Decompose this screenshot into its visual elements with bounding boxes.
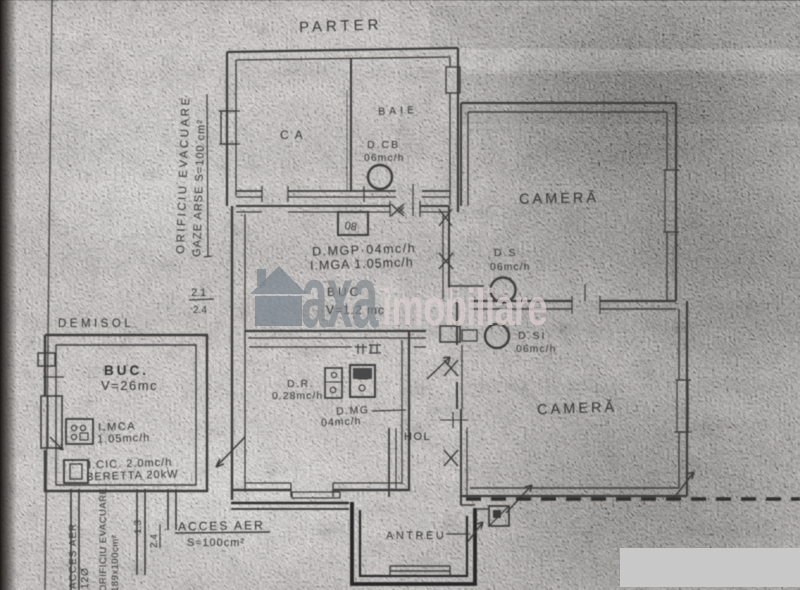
svg-text:D.R.: D.R.	[287, 378, 314, 390]
svg-text:1.05mc/h: 1.05mc/h	[97, 432, 151, 446]
svg-text:BUC.: BUC.	[104, 363, 149, 378]
svg-text:HOL: HOL	[404, 431, 431, 443]
svg-text:CAMERĂ: CAMERĂ	[537, 399, 618, 419]
svg-text:2.1: 2.1	[191, 287, 206, 299]
svg-text:1.3: 1.3	[133, 520, 144, 534]
svg-text:06mc/h: 06mc/h	[364, 152, 404, 164]
svg-text:DEMISOL: DEMISOL	[58, 318, 134, 330]
svg-text:ACCES AER: ACCES AER	[178, 518, 265, 534]
svg-text:CA: CA	[280, 128, 309, 142]
svg-text:ORIFICIU EVACUARE: ORIFICIU EVACUARE	[98, 488, 109, 590]
svg-text:axa: axa	[301, 249, 379, 347]
svg-text:06mc/h: 06mc/h	[516, 343, 556, 355]
svg-text:189x100cm²: 189x100cm²	[110, 535, 121, 590]
svg-text:D.S: D.S	[494, 247, 518, 259]
svg-text:ANTREU: ANTREU	[386, 530, 446, 542]
svg-text:D.CB: D.CB	[367, 139, 400, 151]
svg-text:0.28mc/h: 0.28mc/h	[272, 390, 323, 402]
svg-text:04mc/h: 04mc/h	[321, 415, 362, 429]
svg-text:S≈100cm²: S≈100cm²	[187, 537, 245, 549]
svg-text:08: 08	[344, 220, 358, 234]
svg-text:imobiliare: imobiliare	[382, 277, 547, 336]
svg-text:12Ø: 12Ø	[80, 567, 91, 589]
svg-text:PARTER: PARTER	[299, 16, 383, 36]
svg-text:06mc/h: 06mc/h	[490, 261, 530, 273]
svg-text:CAMERĂ: CAMERĂ	[519, 189, 599, 207]
svg-text:ACCES AER: ACCES AER	[68, 523, 79, 589]
svg-text:V=26mc: V=26mc	[101, 378, 158, 393]
svg-text:2.4: 2.4	[149, 534, 160, 548]
svg-text:BAIE: BAIE	[378, 104, 419, 118]
svg-text:2.4: 2.4	[193, 305, 207, 316]
